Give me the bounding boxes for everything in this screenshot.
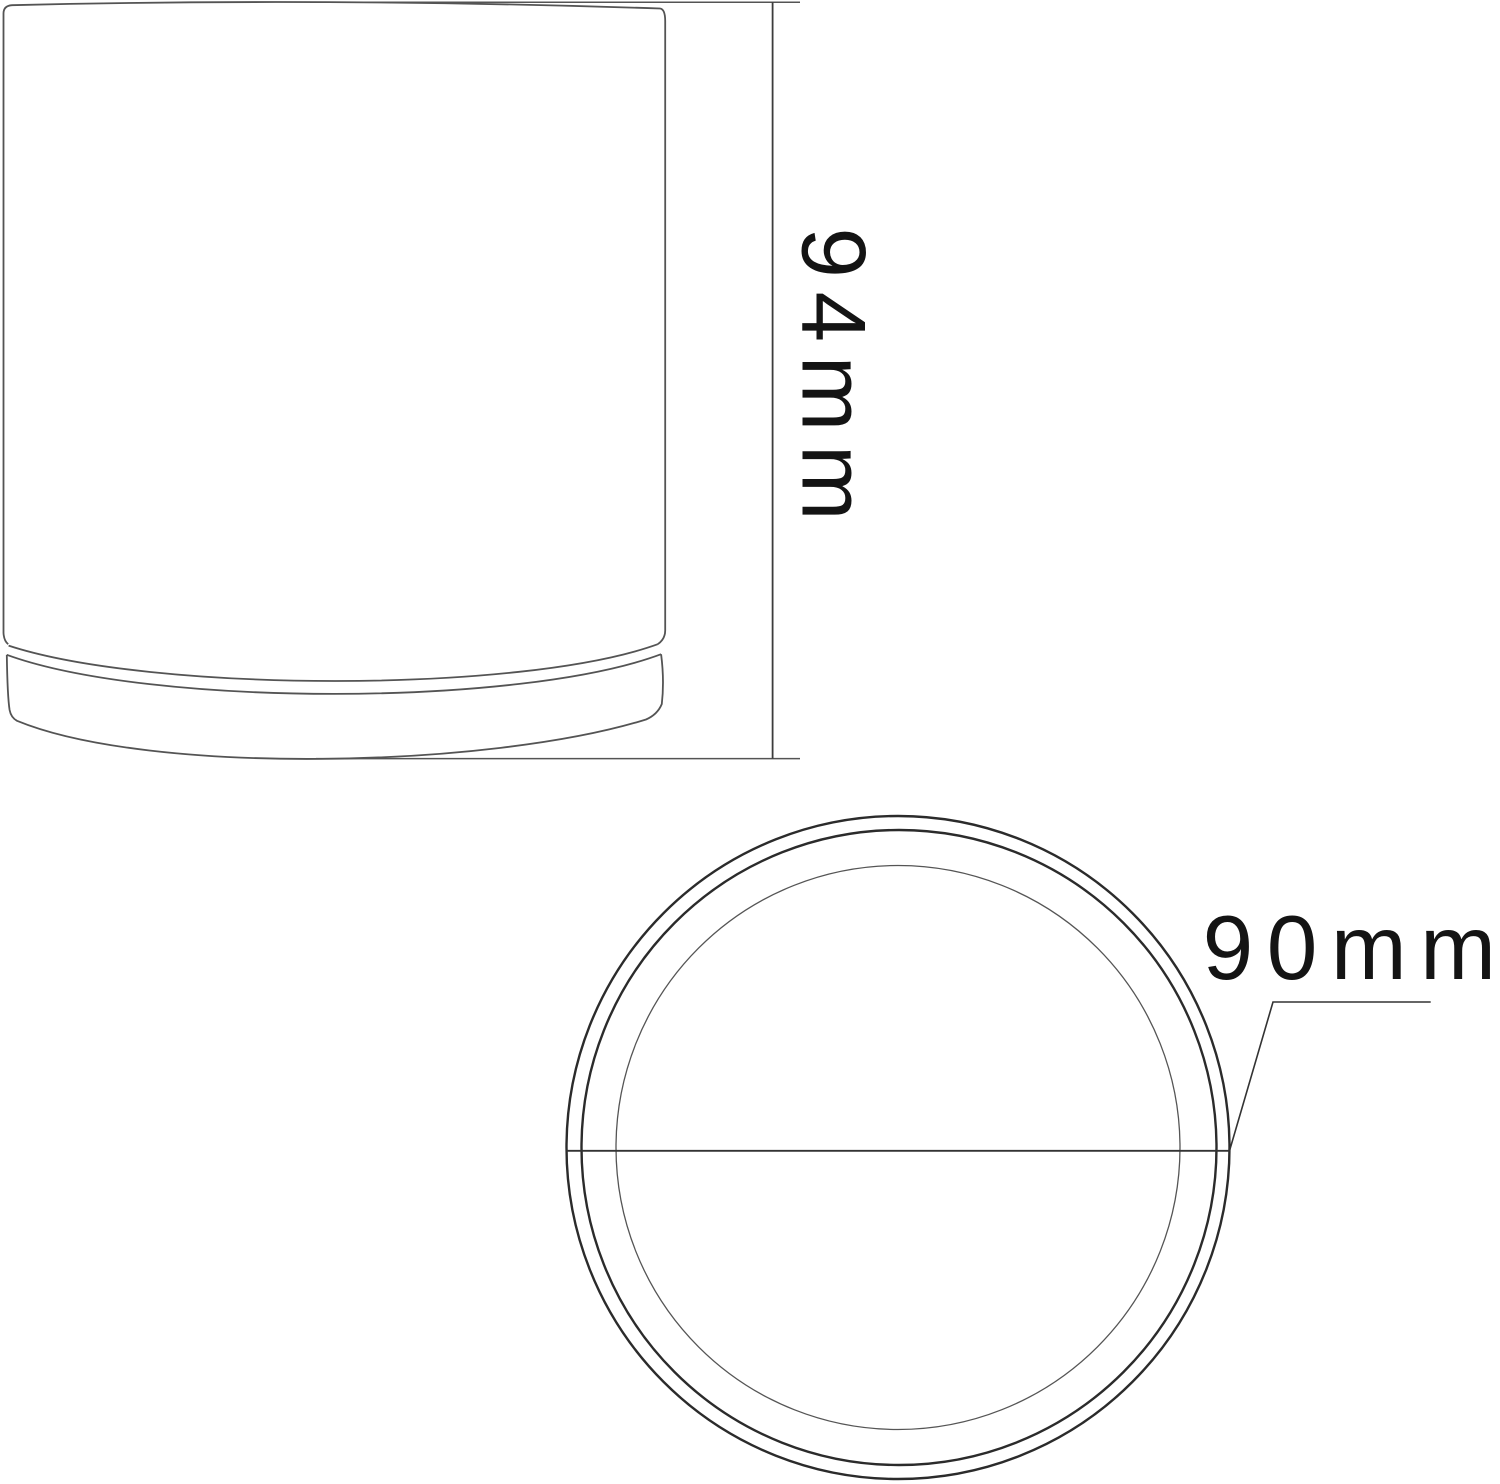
svg-text:94mm: 94mm [783,227,884,534]
svg-text:90mm: 90mm [1203,898,1500,999]
